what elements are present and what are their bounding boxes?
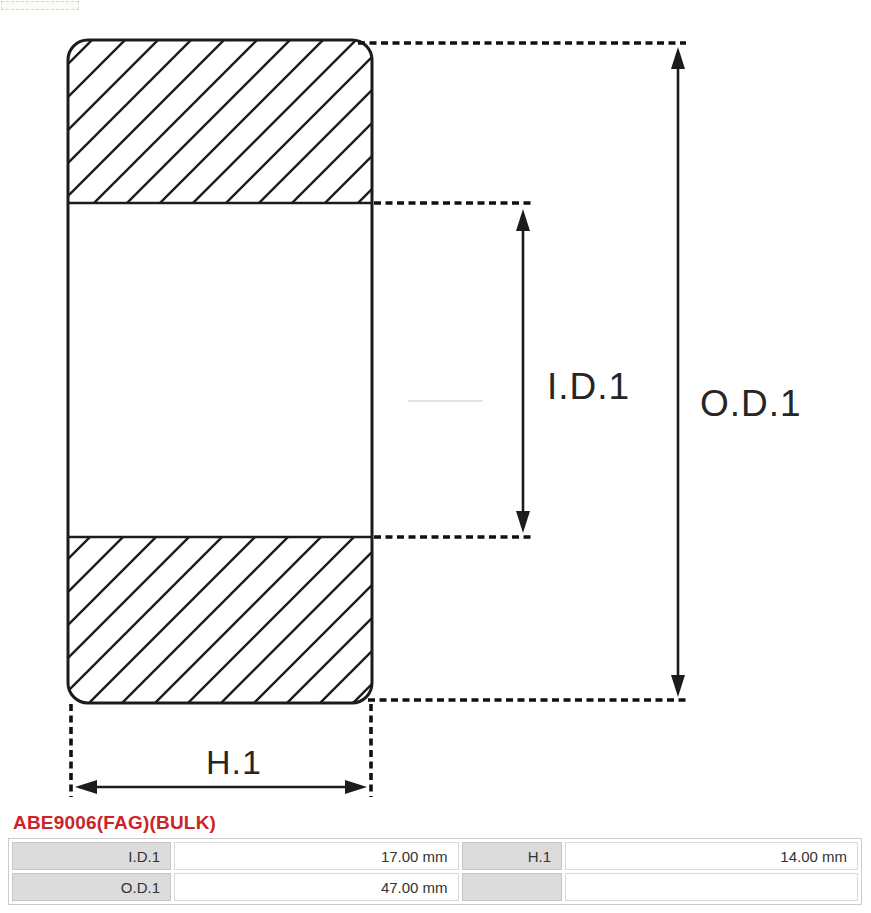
arrowhead-up-icon (516, 209, 530, 231)
width-dimension-arrow (75, 780, 367, 794)
width-label: H.1 (206, 743, 262, 781)
spec-table: I.D.1 17.00 mm H.1 14.00 mm O.D.1 47.00 … (8, 838, 862, 905)
arrowhead-down-icon (516, 511, 530, 533)
spec-value-empty (565, 873, 858, 901)
hatch-band-top (68, 40, 372, 203)
outer-diameter-arrow (671, 47, 685, 697)
bearing-cross-section (68, 40, 372, 703)
arrowhead-left-icon (75, 780, 97, 794)
part-number-title: ABE9006(FAG)(BULK) (13, 812, 216, 834)
spec-row: I.D.1 17.00 mm H.1 14.00 mm (12, 842, 858, 870)
inner-diameter-arrow (516, 209, 530, 533)
spec-value-od1: 47.00 mm (174, 873, 459, 901)
hatch-band-bottom (68, 537, 372, 703)
inner-diameter-label: I.D.1 (547, 366, 630, 407)
bearing-diagram: I.D.1 O.D.1 H.1 (0, 0, 871, 806)
arrowhead-right-icon (345, 780, 367, 794)
spec-label-od1: O.D.1 (12, 873, 171, 901)
spec-label-id1: I.D.1 (12, 842, 171, 870)
spec-row: O.D.1 47.00 mm (12, 873, 858, 901)
spec-value-h1: 14.00 mm (565, 842, 858, 870)
spec-label-empty (462, 873, 562, 901)
arrowhead-up-icon (671, 47, 685, 69)
spec-label-h1: H.1 (462, 842, 562, 870)
arrowhead-down-icon (671, 675, 685, 697)
page: I.D.1 O.D.1 H.1 ABE9006(FAG)(BULK) I.D.1… (0, 0, 871, 913)
outer-diameter-label: O.D.1 (700, 383, 802, 424)
spec-value-id1: 17.00 mm (174, 842, 459, 870)
